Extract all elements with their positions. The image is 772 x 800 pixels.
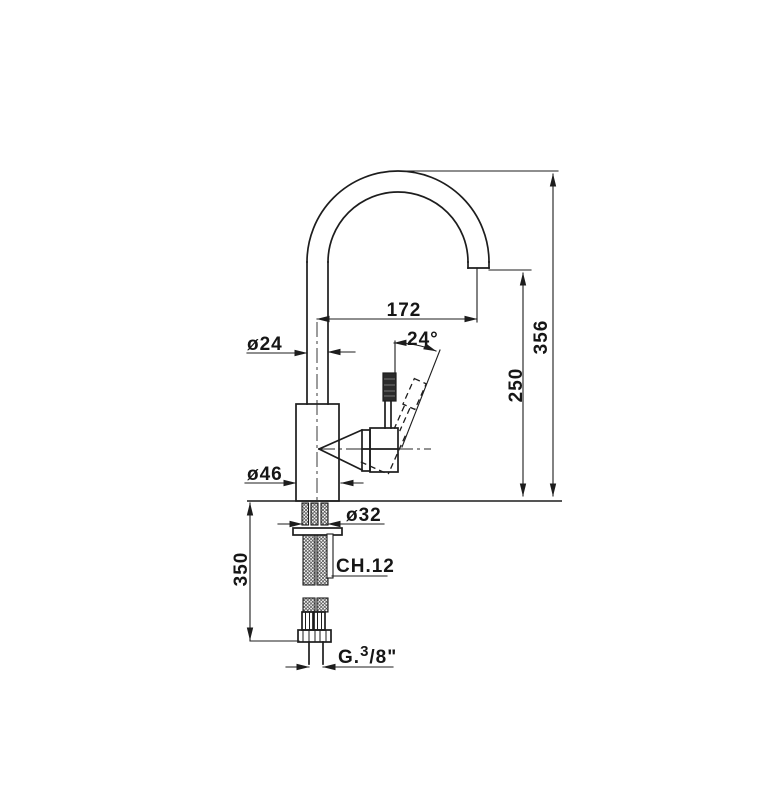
dim-label-handle-angle: 24°: [407, 329, 439, 350]
threaded-shank-left: [302, 503, 309, 525]
technical-drawing-canvas: 172 356 250 350 ø24 24° ø46 ø32 CH.12 G.…: [0, 0, 772, 800]
dim-label-hose-thread: G.3/8": [338, 643, 397, 668]
dimension-lines: [245, 171, 558, 667]
dim-label-body-diameter: ø46: [247, 464, 283, 485]
dim-label-pipe-diameter: ø24: [247, 334, 283, 355]
body-outline: [296, 404, 398, 501]
mounting-washer: [293, 528, 342, 535]
dim-label-outlet-height: 250: [506, 368, 527, 403]
spout-outer-arc: [307, 171, 489, 262]
hose-crimp-left: [302, 612, 313, 630]
hose-thread-prefix: G.: [338, 647, 360, 668]
swung-cap-edge: [388, 436, 405, 474]
dim-label-shank-diameter: ø32: [346, 505, 382, 526]
spout-inner-arc: [328, 192, 468, 262]
mixer-body: [296, 404, 339, 501]
body-funnel-lower: [319, 449, 362, 470]
flex-hose-left-lower: [303, 598, 315, 612]
dim-angle-ext-slanted: [402, 350, 440, 447]
faucet-dimension-drawing: 172 356 250 350 ø24 24° ø46 ø32 CH.12 G.…: [0, 0, 772, 800]
lever-grip: [383, 373, 396, 401]
threaded-shank-right: [321, 503, 328, 525]
flex-hose-left-upper: [303, 535, 315, 585]
dim-label-spout-reach: 172: [387, 300, 422, 321]
cartridge-cap: [370, 428, 398, 472]
hose-thread-denominator: /8": [369, 647, 397, 668]
flex-hose-right-upper: [317, 535, 328, 585]
body-funnel-upper: [319, 430, 362, 449]
mounting-stud: [327, 534, 333, 578]
spout-outline: [307, 171, 489, 404]
flex-hose-right-lower: [317, 598, 328, 612]
hose-crimp-right: [314, 612, 325, 630]
dim-label-total-height: 356: [531, 320, 552, 355]
swung-stem-right: [400, 408, 410, 431]
dim-label-under-counter: 350: [231, 552, 252, 587]
hose-thread-numerator: 3: [360, 643, 369, 660]
handle-assembly: [383, 373, 396, 428]
dim-label-wrench-size: CH.12: [336, 556, 395, 577]
hex-nut-facets: [303, 630, 326, 642]
under-counter-assembly: [293, 503, 342, 664]
threaded-shank-mid: [311, 503, 318, 525]
swung-stem-left: [394, 406, 404, 429]
